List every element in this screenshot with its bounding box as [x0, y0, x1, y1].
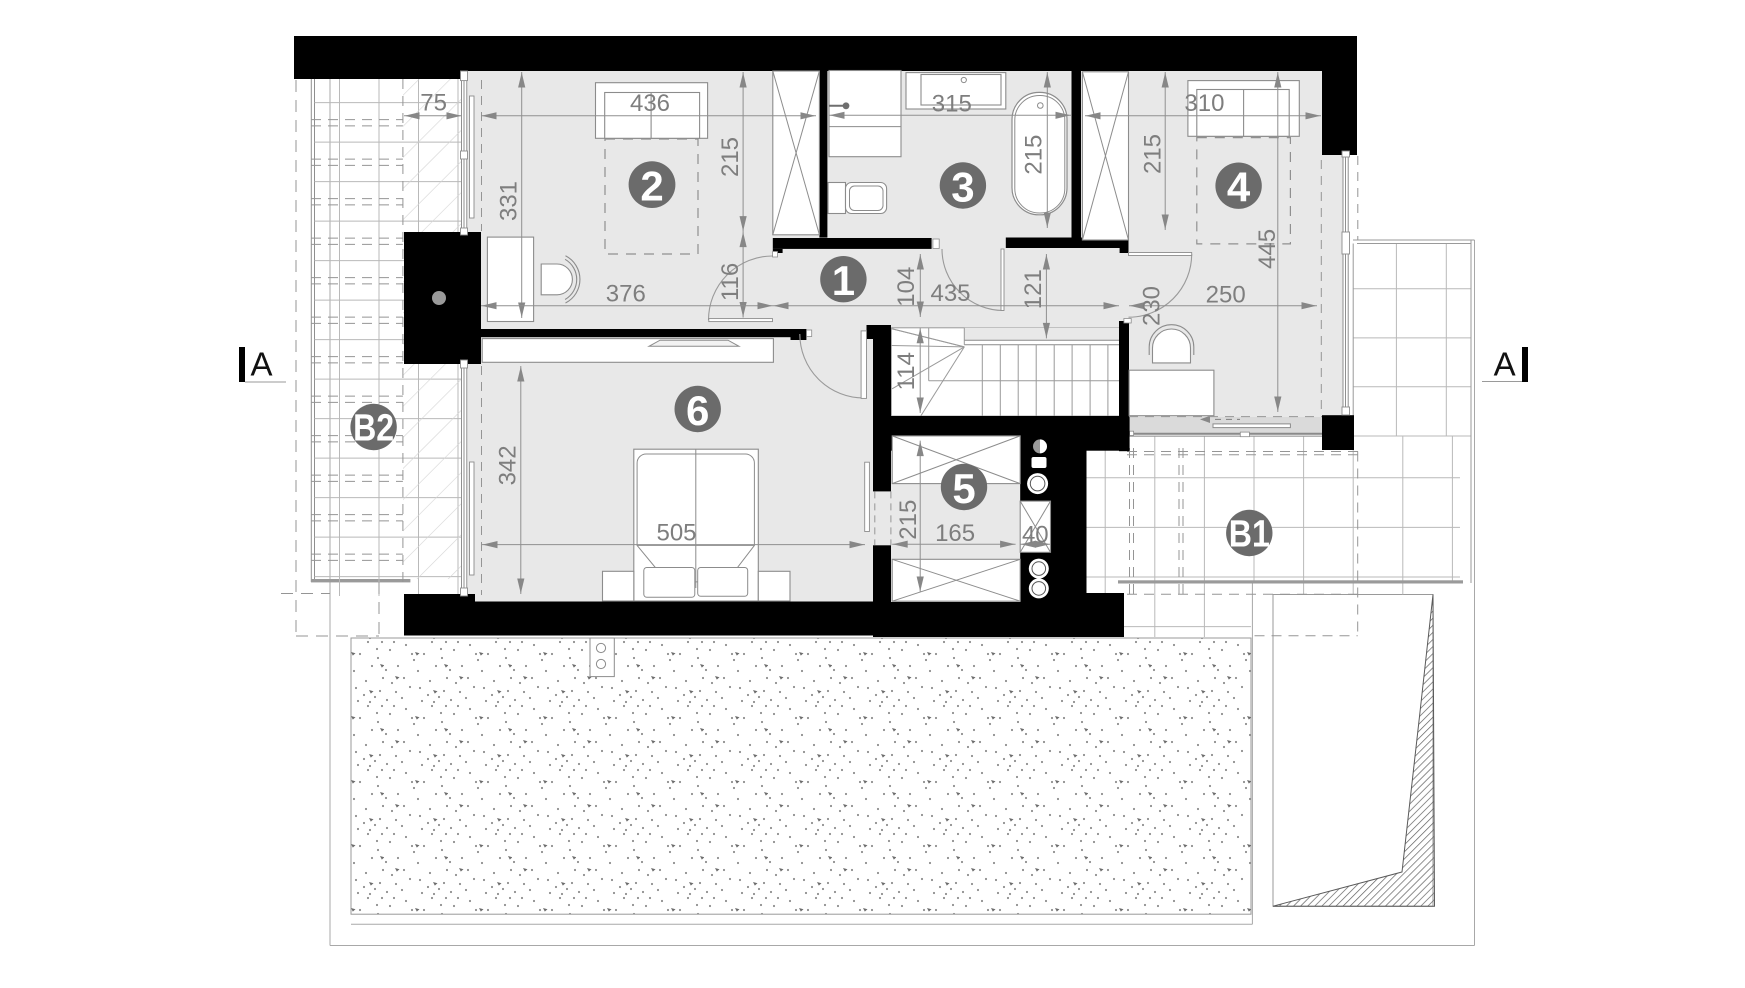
svg-text:4: 4 [1227, 164, 1251, 211]
svg-text:75: 75 [420, 90, 447, 117]
svg-text:3: 3 [951, 164, 974, 211]
svg-text:114: 114 [893, 352, 920, 390]
svg-text:A: A [1494, 346, 1516, 383]
svg-text:215: 215 [895, 500, 922, 540]
svg-text:B1: B1 [1229, 514, 1270, 556]
svg-text:331: 331 [496, 181, 523, 221]
svg-text:165: 165 [935, 520, 975, 547]
svg-text:104: 104 [893, 267, 920, 307]
svg-text:A: A [250, 346, 272, 383]
svg-text:116: 116 [717, 263, 744, 301]
svg-text:315: 315 [932, 90, 972, 117]
svg-text:B2: B2 [353, 408, 394, 450]
svg-text:436: 436 [630, 90, 670, 117]
svg-text:445: 445 [1254, 229, 1281, 269]
svg-text:2: 2 [640, 163, 663, 210]
svg-text:40: 40 [1022, 521, 1049, 548]
svg-text:6: 6 [686, 387, 709, 434]
svg-text:1: 1 [832, 257, 855, 304]
svg-text:505: 505 [656, 519, 696, 546]
svg-text:310: 310 [1184, 90, 1224, 117]
svg-text:342: 342 [494, 445, 521, 485]
svg-text:121: 121 [1020, 269, 1047, 309]
svg-text:230: 230 [1139, 286, 1166, 326]
svg-text:376: 376 [606, 281, 646, 308]
svg-text:215: 215 [717, 137, 744, 177]
svg-text:5: 5 [952, 465, 975, 512]
svg-text:250: 250 [1206, 282, 1246, 309]
svg-text:435: 435 [930, 280, 970, 307]
svg-text:215: 215 [1020, 135, 1047, 175]
svg-text:215: 215 [1139, 134, 1166, 174]
